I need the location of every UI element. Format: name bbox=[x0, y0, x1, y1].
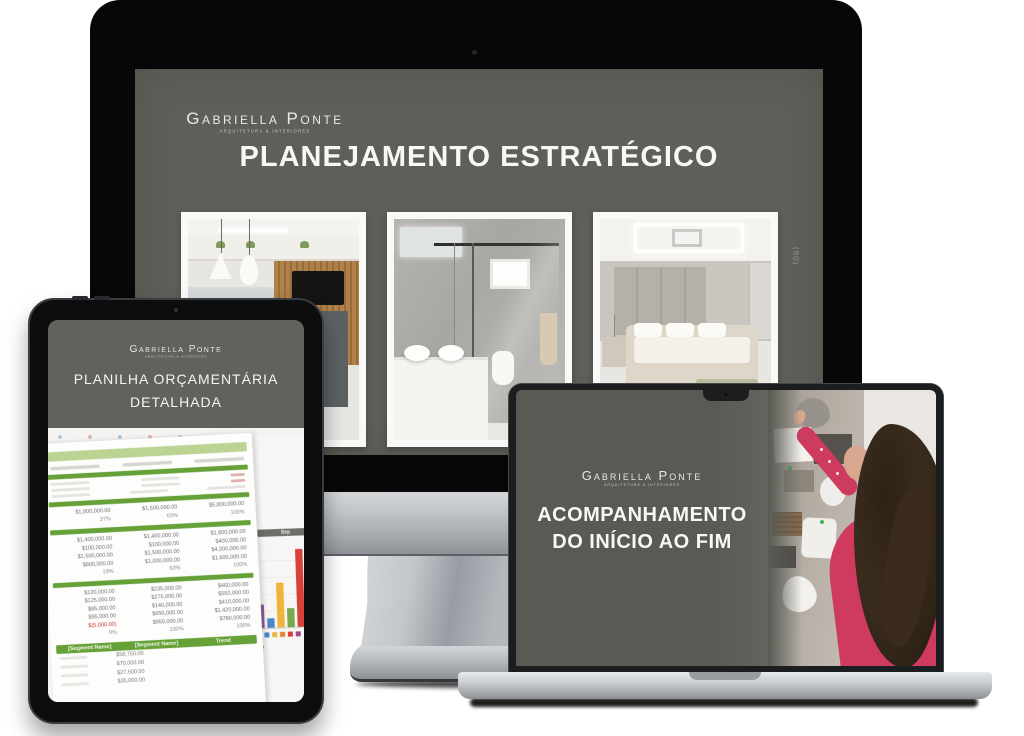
title-line-2: DO INÍCIO AO FIM bbox=[516, 529, 768, 556]
brand-tagline: ARQUITETURA & INTERIORES bbox=[127, 355, 224, 358]
toilet bbox=[492, 351, 514, 385]
brand-name: Gabriella Ponte bbox=[135, 109, 395, 129]
ceiling bbox=[188, 219, 359, 235]
chart-legend bbox=[256, 631, 300, 638]
plant-icon bbox=[300, 241, 309, 248]
pillow bbox=[634, 323, 662, 337]
volume-button bbox=[72, 296, 88, 300]
brand-tagline: ARQUITETURA & INTERIORES bbox=[210, 129, 319, 134]
title-line-2: DETALHADA bbox=[48, 391, 304, 414]
title-line-1: ACOMPANHAMENTO bbox=[516, 502, 768, 529]
budget-rows-a: $1,400,000.00$1,400,000.00$1,800,000.00$… bbox=[50, 527, 253, 579]
webcam-icon bbox=[174, 308, 178, 312]
slide-title-planilha: PLANILHA ORÇAMENTÁRIA DETALHADA bbox=[48, 368, 304, 414]
pendant-lamp-drop bbox=[240, 255, 258, 285]
lamp-cord bbox=[221, 219, 222, 253]
device-mockup-stage: Gabriella Ponte ARQUITETURA & INTERIORES… bbox=[0, 0, 1024, 736]
brand-name: Gabriella Ponte bbox=[48, 344, 304, 355]
laptop-base bbox=[458, 672, 992, 699]
title-line-1: PLANILHA ORÇAMENTÁRIA bbox=[48, 368, 304, 391]
brand-logo: Gabriella Ponte ARQUITETURA & INTERIORES bbox=[48, 344, 304, 364]
spreadsheet-photo: Shopping Cost/Item $10.00 Sep bbox=[48, 428, 304, 702]
laptop-slide: Gabriella Ponte ARQUITETURA & INTERIORES… bbox=[516, 390, 936, 666]
tablet-slide-header: Gabriella Ponte ARQUITETURA & INTERIORES… bbox=[48, 320, 304, 428]
dot-icon bbox=[58, 435, 62, 439]
bar bbox=[267, 618, 275, 628]
lamp-cord bbox=[249, 219, 250, 255]
laptop-slide-left: Gabriella Ponte ARQUITETURA & INTERIORES… bbox=[516, 390, 768, 666]
upper-cabinet bbox=[188, 235, 359, 261]
cuff-button bbox=[820, 448, 823, 451]
brand-name: Gabriella Ponte bbox=[516, 468, 768, 483]
dot-icon bbox=[118, 435, 122, 439]
slide-title-planejamento: PLANEJAMENTO ESTRATÉGICO bbox=[135, 141, 823, 174]
slide-photo-fade bbox=[768, 390, 802, 666]
laptop-notch bbox=[703, 390, 749, 401]
mirror bbox=[400, 227, 462, 257]
cuff-button bbox=[828, 460, 831, 463]
webcam-icon bbox=[472, 50, 477, 55]
column-header-sep: Sep bbox=[257, 528, 304, 537]
volume-button bbox=[94, 296, 110, 300]
legend-swatch-icon bbox=[264, 632, 269, 637]
sheet-left: $1,800,000.00$1,500,000.00$5,800,000.003… bbox=[48, 433, 267, 702]
cuff-button bbox=[836, 472, 839, 475]
bar bbox=[276, 583, 285, 628]
laptop-shadow bbox=[470, 698, 978, 707]
vanity-cabinet bbox=[394, 357, 488, 440]
budget-rows-b: $120,000.00$235,000.00$460,000.00$125,00… bbox=[53, 580, 256, 640]
pillow bbox=[666, 323, 694, 337]
dot-icon bbox=[88, 435, 92, 439]
towel bbox=[540, 313, 557, 365]
sheet-left-content: $1,800,000.00$1,500,000.00$5,800,000.003… bbox=[48, 433, 265, 694]
legend-swatch-icon bbox=[272, 632, 277, 637]
bar bbox=[287, 608, 295, 627]
vessel-sink bbox=[438, 345, 464, 361]
legend-swatch-icon bbox=[288, 632, 293, 637]
laptop-lip-groove bbox=[689, 672, 761, 680]
pin-icon bbox=[820, 520, 824, 524]
laptop: Gabriella Ponte ARQUITETURA & INTERIORES… bbox=[508, 383, 944, 673]
flush-light bbox=[672, 229, 702, 247]
plant-icon bbox=[246, 241, 255, 248]
pillow bbox=[698, 323, 726, 337]
tablet-slide: Gabriella Ponte ARQUITETURA & INTERIORES… bbox=[48, 320, 304, 702]
webcam-icon bbox=[725, 393, 728, 396]
pendant-cord bbox=[614, 315, 615, 337]
brand-logo: Gabriella Ponte ARQUITETURA & INTERIORES bbox=[135, 109, 395, 140]
led-strip bbox=[218, 229, 288, 232]
laptop-photo-designer bbox=[768, 390, 936, 666]
legend-swatch-icon bbox=[296, 631, 301, 636]
tablet: Gabriella Ponte ARQUITETURA & INTERIORES… bbox=[28, 298, 324, 724]
chart-bars bbox=[255, 542, 304, 628]
bar bbox=[295, 549, 304, 627]
brand-logo: Gabriella Ponte ARQUITETURA & INTERIORES bbox=[516, 468, 768, 493]
slide-title-acompanhamento: ACOMPANHAMENTO DO INÍCIO AO FIM bbox=[516, 502, 768, 556]
brand-tagline: ARQUITETURA & INTERIORES bbox=[592, 483, 693, 487]
bed-sheet bbox=[634, 337, 750, 363]
vessel-sink bbox=[404, 345, 430, 361]
legend-swatch-icon bbox=[280, 632, 285, 637]
